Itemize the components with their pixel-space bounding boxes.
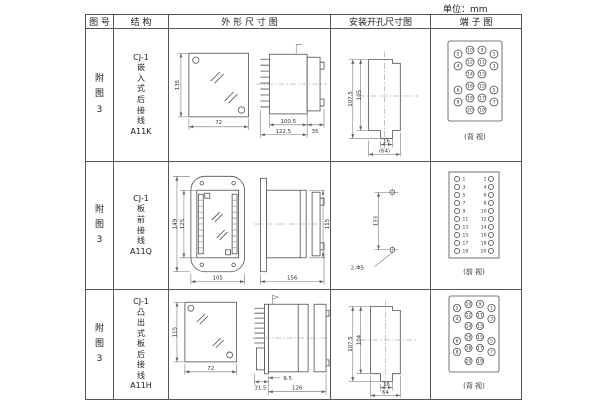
outline-drawing-a11h: 115 72 31.5	[169, 290, 330, 399]
terminal-number: 2	[456, 306, 459, 312]
header-install: 安装开孔尺寸图	[331, 15, 431, 29]
terminal-number: 10	[467, 47, 473, 53]
terminal-number: 5	[493, 87, 496, 93]
terminal-number: 17	[477, 346, 483, 352]
terminal-drawing-a11k: 2 10 9 1 4 12 11 3 14 13 6 16 15 5 8 18	[431, 29, 521, 162]
terminal-number: 20	[467, 107, 473, 113]
terminal-number: 11	[463, 216, 469, 222]
dim-label: 2-Φ5	[351, 265, 364, 271]
side-view: 156 115	[254, 178, 330, 284]
dim-label: 115	[172, 327, 178, 337]
terminal-number: 3	[493, 63, 496, 69]
dim-label: 122.5	[275, 128, 291, 134]
terminal-number: 10	[466, 302, 472, 308]
terminal-number: 3	[463, 184, 466, 190]
outline-drawing-a11q: 149 125 105 156 115	[169, 162, 330, 290]
terminal-caption: (背 视)	[464, 132, 486, 141]
terminal-number: 13	[463, 224, 469, 230]
terminal-number: 12	[467, 59, 473, 65]
terminal-number: 13	[479, 71, 485, 77]
terminal-drawing-a11h: 2 10 9 1 4 12 11 3 14 13 6 16 15 5 8 18	[431, 290, 521, 399]
header-outline: 外 形 尺 寸 图	[169, 15, 331, 29]
manual-page: 单位：mm 图 号 结 构 外 形 尺 寸 图 安装开孔尺寸图 端 子 图 附 …	[0, 0, 600, 400]
front-view: 149 125 105	[172, 176, 244, 284]
terminal-number: 6	[457, 87, 460, 93]
terminal-caption: (前 视)	[463, 267, 485, 276]
terminal-cell-2: 1 3 5 7 9 11 13 15 17 19 2 4 6 8 10 12 1	[431, 162, 521, 290]
terminal-number: 17	[463, 240, 469, 246]
dim-label: 100.5	[280, 118, 296, 124]
terminal-number: 10	[481, 208, 487, 214]
terminal-number: 20	[481, 248, 487, 254]
terminal-number: 1	[493, 51, 496, 57]
terminal-number: 12	[481, 216, 487, 222]
terminal-caption: (背 视)	[463, 381, 485, 390]
terminal-number: 7	[463, 200, 466, 206]
dim-label: 125	[180, 218, 186, 228]
terminal-number: 20	[466, 359, 472, 365]
header-fig: 图 号	[86, 15, 114, 29]
install-cell-3: 107.5 104 16 64	[331, 290, 431, 399]
terminal-grid: 2 10 9 1 4 12 11 3 14 13 6 16 15 5 8 18	[454, 46, 498, 114]
terminal-number: 13	[477, 324, 483, 330]
dim-label: 64	[382, 390, 389, 396]
front-view: 115 72	[172, 302, 236, 375]
terminal-number: 15	[479, 83, 485, 89]
terminal-number: 15	[477, 335, 483, 341]
outline-cell-1: 135 72 100.5 122.5 35	[169, 29, 331, 162]
terminal-number: 8	[457, 99, 460, 105]
front-view: 135 72	[175, 53, 249, 130]
dim-label: 126	[292, 386, 303, 392]
terminal-number: 19	[477, 359, 483, 365]
struct-cell-2: CJ-1 板 前 接 线 A11Q	[114, 162, 169, 290]
terminal-number: 2	[457, 51, 460, 57]
terminal-drawing-a11q: 1 3 5 7 9 11 13 15 17 19 2 4 6 8 10 12 1	[431, 162, 521, 290]
terminal-number: 19	[463, 248, 469, 254]
install-drawing-a11k: 107.5 105 16 (64)	[331, 29, 430, 162]
side-view: 31.5 9.5 126	[252, 295, 329, 394]
dimension-table: 图 号 结 构 外 形 尺 寸 图 安装开孔尺寸图 端 子 图 附 图 3 CJ…	[85, 14, 522, 400]
terminal-number: 16	[467, 83, 473, 89]
terminal-number: 3	[490, 317, 493, 323]
terminal-number: 4	[457, 63, 460, 69]
dim-label: 72	[215, 119, 222, 125]
dim-label: 16	[383, 138, 390, 144]
fig-cell-1: 附 图 3	[86, 29, 114, 162]
dim-label: (64)	[379, 148, 390, 154]
header-struct: 结 构	[114, 15, 169, 29]
terminal-number: 9	[479, 302, 482, 308]
dim-label: 135	[175, 79, 181, 89]
terminal-number: 1	[490, 306, 493, 312]
terminal-number: 4	[484, 184, 487, 190]
outline-cell-2: 149 125 105 156 115	[169, 162, 331, 290]
dim-label: 133	[374, 215, 380, 226]
terminal-number: 1	[463, 176, 466, 182]
outline-drawing-a11k: 135 72 100.5 122.5 35	[169, 29, 330, 162]
install-drawing-a11q: 133 2-Φ5	[331, 162, 430, 290]
terminal-number: 15	[463, 232, 469, 238]
terminal-number: 5	[463, 192, 466, 198]
install-drawing-a11h: 107.5 104 16 64	[331, 290, 430, 399]
dim-label: 35	[312, 128, 319, 134]
install-cell-2: 133 2-Φ5	[331, 162, 431, 290]
install-cell-1: 107.5 105 16 (64)	[331, 29, 431, 162]
terminal-number: 6	[484, 192, 487, 198]
panel-cutout	[361, 300, 416, 389]
dim-label: 16	[383, 382, 390, 388]
dim-label: 72	[207, 366, 214, 372]
outline-cell-3: 115 72 31.5	[169, 290, 331, 399]
terminal-number: 17	[479, 95, 485, 101]
header-terminal: 端 子 图	[431, 15, 521, 29]
struct-cell-3: CJ-1 凸 出 式 板 后 接 线 A11H	[114, 290, 169, 399]
terminal-number: 11	[479, 59, 485, 65]
dim-label: 31.5	[254, 386, 266, 392]
terminal-number: 8	[456, 350, 459, 356]
terminal-number: 7	[493, 99, 496, 105]
dim-label: 115	[325, 218, 330, 228]
dim-label: 105	[212, 275, 222, 281]
terminal-number: 5	[490, 339, 493, 345]
dim-label: 149	[172, 218, 178, 229]
fig-cell-2: 附 图 3	[86, 162, 114, 290]
terminal-grid: 2 10 9 1 4 12 11 3 14 13 6 16 15 5 8 18	[453, 300, 495, 364]
terminal-number: 14	[466, 324, 472, 330]
terminal-number: 9	[481, 47, 484, 53]
terminal-number: 8	[484, 200, 487, 206]
terminal-number: 9	[463, 208, 466, 214]
terminal-number: 16	[481, 232, 487, 238]
terminal-number: 18	[467, 95, 473, 101]
dim-label: 105	[357, 89, 363, 99]
panel-cutout	[359, 51, 418, 148]
terminal-number: 18	[481, 240, 487, 246]
dim-label: 9.5	[283, 376, 292, 382]
dim-label: 107.5	[348, 91, 354, 107]
terminal-number: 16	[466, 335, 472, 341]
terminal-number: 14	[467, 71, 473, 77]
dim-label: 104	[357, 334, 363, 345]
struct-cell-1: CJ-1 嵌 入 式 后 接 线 A11K	[114, 29, 169, 162]
terminal-columns: 1 3 5 7 9 11 13 15 17 19 2 4 6 8 10 12 1	[454, 176, 493, 254]
terminal-number: 14	[481, 224, 487, 230]
fig-cell-3: 附 图 3	[86, 290, 114, 399]
terminal-number: 12	[466, 313, 472, 319]
dim-label: 156	[287, 275, 298, 281]
side-view: 100.5 122.5 35	[255, 44, 327, 137]
dim-label: 107.5	[348, 336, 354, 352]
terminal-number: 4	[456, 317, 459, 323]
terminal-number: 2	[484, 176, 487, 182]
terminal-number: 18	[466, 346, 472, 352]
terminal-number: 11	[477, 313, 483, 319]
terminal-number: 7	[490, 350, 493, 356]
terminal-cell-3: 2 10 9 1 4 12 11 3 14 13 6 16 15 5 8 18	[431, 290, 521, 399]
terminal-cell-1: 2 10 9 1 4 12 11 3 14 13 6 16 15 5 8 18	[431, 29, 521, 162]
terminal-number: 19	[479, 107, 485, 113]
terminal-number: 6	[456, 339, 459, 345]
